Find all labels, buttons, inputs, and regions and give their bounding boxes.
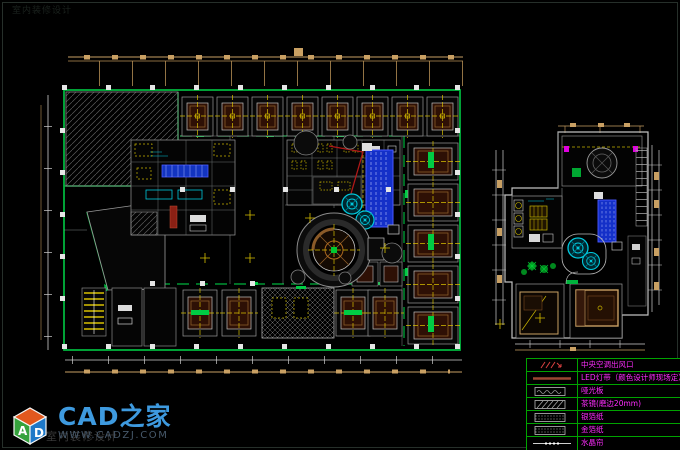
dimension-grid-top — [68, 48, 464, 86]
ac-vent-icon — [529, 360, 575, 371]
watermark-top: 室内装修设计 — [12, 3, 72, 16]
secondary-room-right — [566, 272, 622, 338]
central-ceiling-feature — [297, 213, 371, 287]
brand-name: CAD之家 — [58, 404, 171, 430]
crystal-curtain-icon — [529, 438, 575, 449]
silver-foil-icon — [529, 412, 575, 423]
legend-label: 银箔纸 — [578, 411, 680, 423]
cadzj-cube-icon: A D — [8, 404, 52, 446]
legend-row: 金箔纸 — [527, 424, 680, 437]
tea-mirror-icon — [529, 399, 575, 410]
legend-row: 水晶帘 — [527, 437, 680, 450]
service-rooms — [112, 288, 176, 346]
gold-foil-icon — [529, 425, 575, 436]
legend-row: LED灯带（颜色设计师现场定） — [527, 372, 680, 385]
platform — [368, 238, 384, 260]
storage-block — [262, 286, 334, 338]
site-logo: A D CAD之家 WWW.CADZJ.COM — [8, 404, 171, 446]
private-rooms-top — [180, 95, 460, 138]
dimension-grid-left — [41, 95, 52, 350]
legend-label: 金箔纸 — [578, 424, 680, 436]
secondary-stairs — [636, 148, 647, 226]
legend-label: 茶镜(磨边20mm) — [578, 398, 680, 410]
cube-letter-d: D — [34, 426, 44, 440]
brand-url: WWW.CADZJ.COM — [58, 430, 171, 441]
dimension-grid-bottom — [65, 356, 462, 374]
legend-row: 茶镜(磨边20mm) — [527, 398, 680, 411]
matte-panel-icon — [529, 386, 575, 397]
legend-label: 哑光板 — [578, 385, 680, 397]
plants — [521, 261, 556, 275]
legend-label: 水晶帘 — [578, 437, 680, 450]
secondary-kitchen — [512, 196, 562, 248]
legend-row: 中央空调出风口 — [527, 359, 680, 372]
cube-letter-a: A — [18, 424, 28, 438]
legend-label: LED灯带（颜色设计师现场定） — [578, 372, 680, 384]
secondary-plan — [492, 123, 662, 351]
legend-row: 哑光板 — [527, 385, 680, 398]
stairwell — [82, 288, 106, 336]
secondary-escalator — [594, 192, 622, 250]
vip-dining-room — [562, 136, 642, 186]
secondary-right-rooms — [628, 236, 646, 306]
materials-legend: 中央空调出风口 LED灯带（颜色设计师现场定） 哑光板 茶镜(磨边20mm) — [526, 358, 680, 450]
private-rooms-right — [406, 141, 460, 346]
legend-row: 银箔纸 — [527, 411, 680, 424]
main-plan — [41, 48, 505, 374]
legend-label: 中央空调出风口 — [578, 359, 680, 371]
secondary-room-left — [516, 284, 564, 338]
led-strip-icon — [529, 373, 575, 384]
